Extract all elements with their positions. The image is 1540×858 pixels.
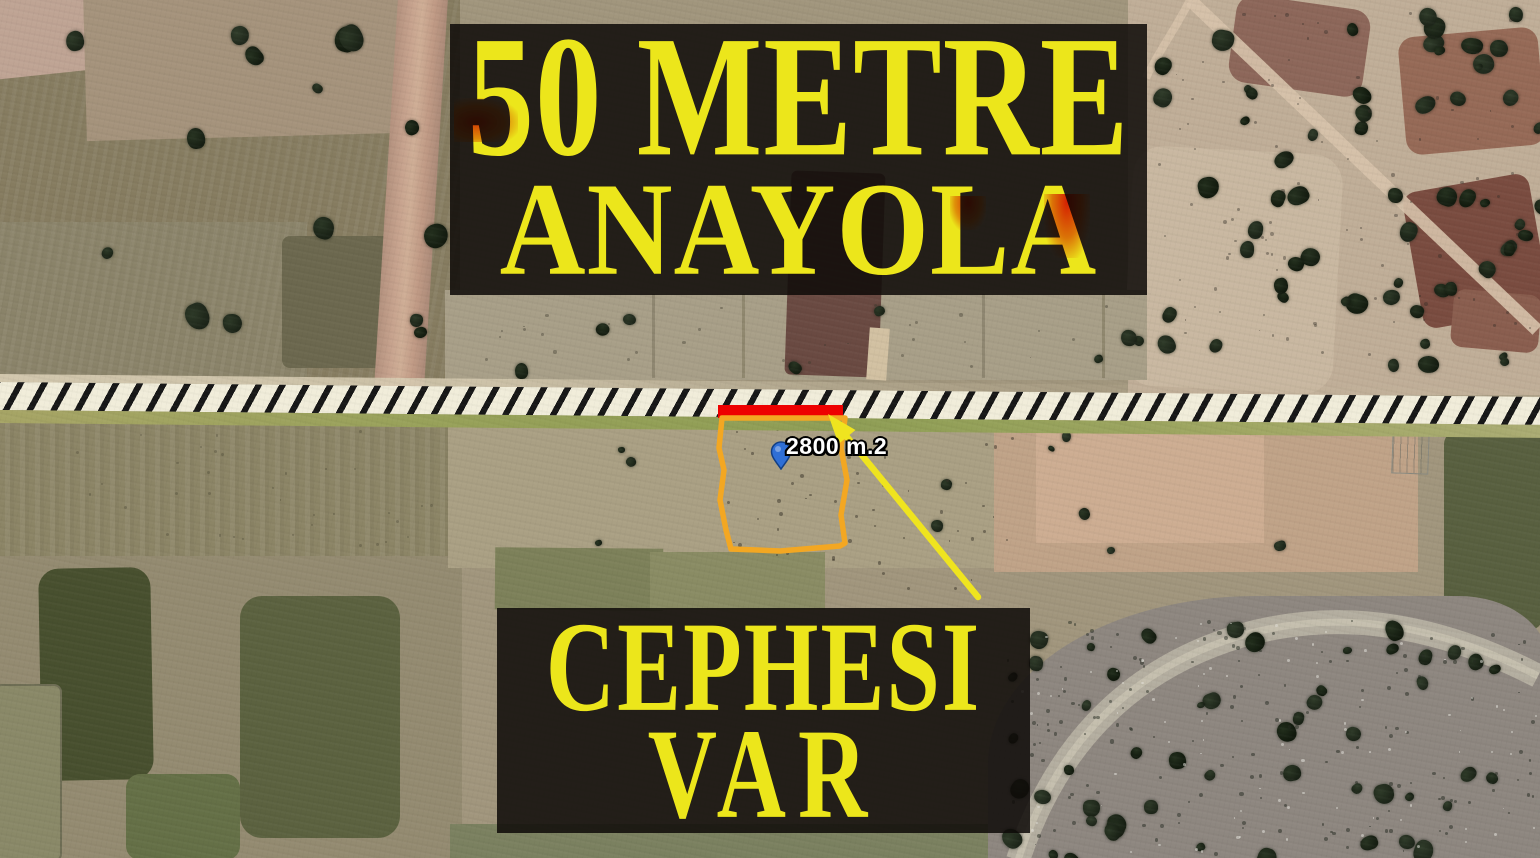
arrow-line xyxy=(847,437,978,597)
satellite-image: 2800 m.2 50 METRE ANAYOLA CEPHESI VAR xyxy=(0,0,1540,858)
parcel-area-label: 2800 m.2 xyxy=(786,435,887,458)
banner-line-2: ANAYOLA xyxy=(500,163,1098,295)
bottom-banner: CEPHESI VAR xyxy=(497,608,1030,833)
top-banner: 50 METRE ANAYOLA xyxy=(450,24,1147,295)
banner-line-2: VAR xyxy=(648,710,880,833)
